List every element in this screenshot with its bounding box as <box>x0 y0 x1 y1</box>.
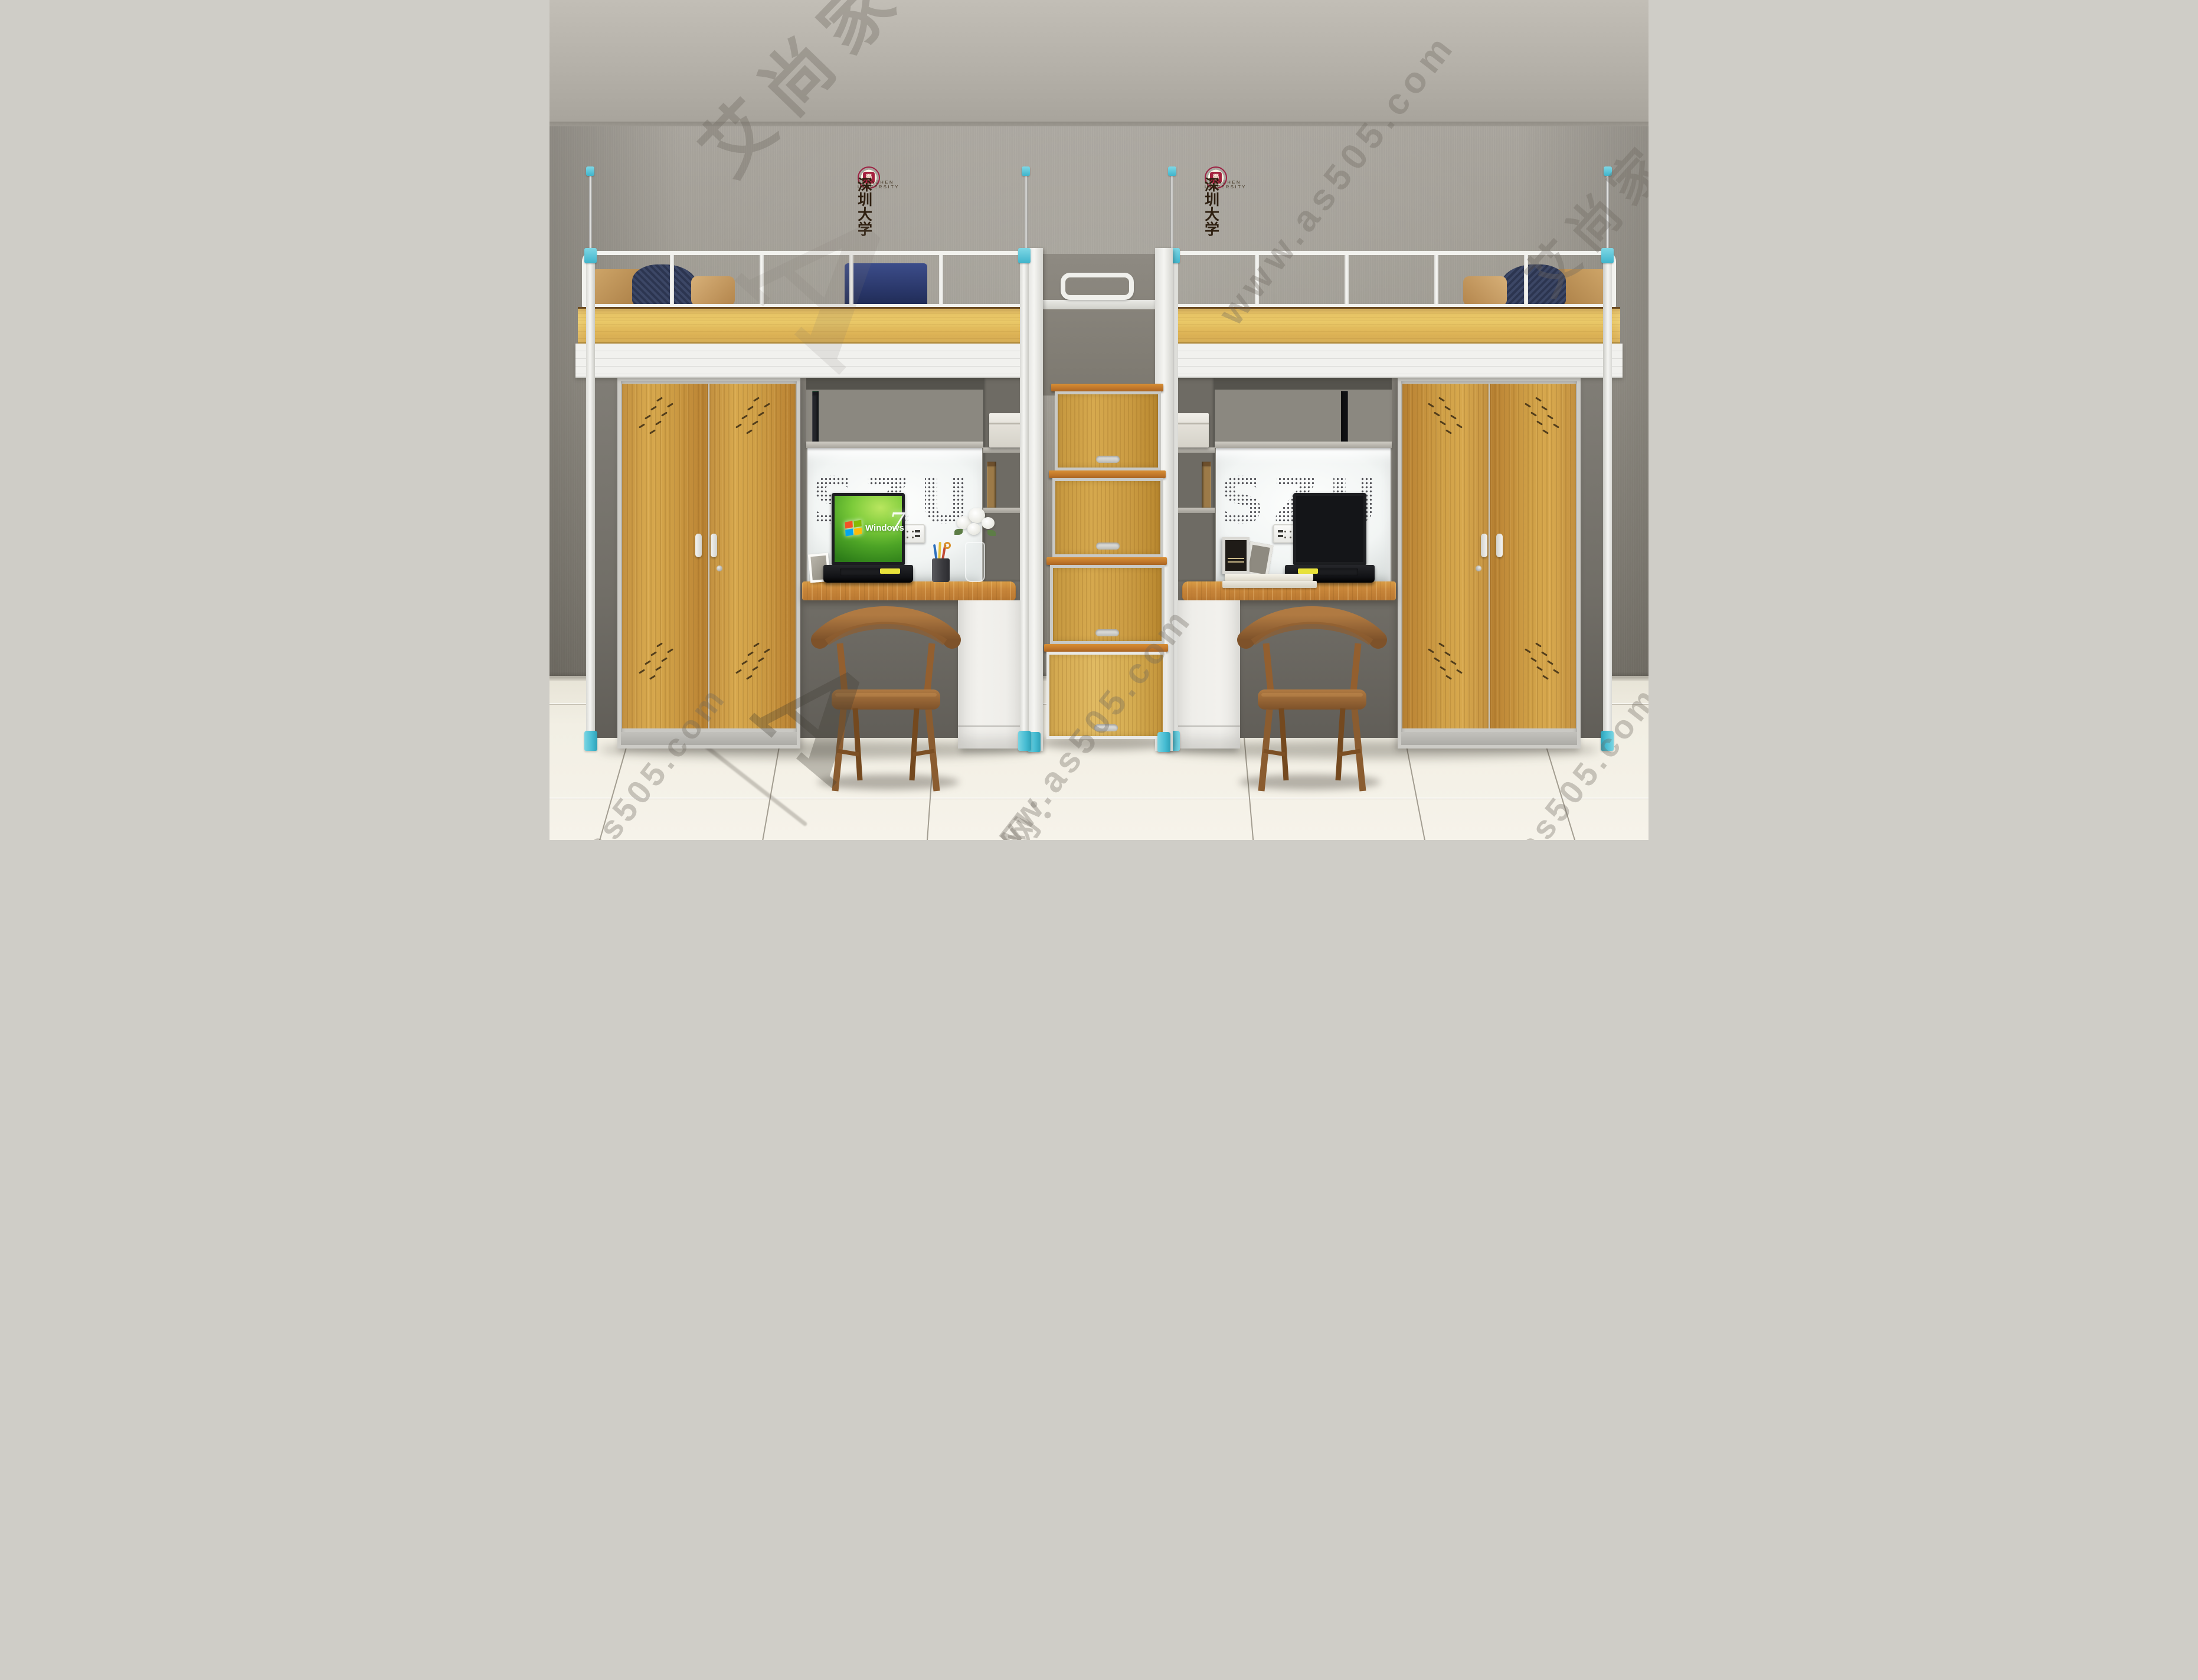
wardrobe-door-right <box>709 384 796 728</box>
net-pole <box>589 172 592 253</box>
wooden-chair <box>1235 596 1389 797</box>
net-pole <box>1606 172 1609 253</box>
photo-frames-and-books <box>1205 537 1275 587</box>
usb-ports <box>915 530 920 532</box>
laptop-screen: Windows 7 <box>832 493 905 565</box>
bed-side-panel <box>1161 307 1620 344</box>
wardrobe-lock <box>1476 566 1481 571</box>
net-pole-cap <box>1022 166 1030 176</box>
wardrobe <box>1398 378 1581 749</box>
net-pole <box>1170 172 1173 253</box>
storage-box <box>989 413 1021 447</box>
windows-flag-icon <box>845 520 863 537</box>
bed-post-right <box>1020 248 1029 751</box>
wardrobe <box>617 378 800 749</box>
rail-bar <box>1524 255 1528 304</box>
old-books <box>987 458 1025 508</box>
photo-frame <box>1222 537 1250 574</box>
vent-slots <box>639 642 680 684</box>
rail-bar <box>1434 255 1438 304</box>
wardrobe-handle <box>711 534 717 557</box>
under-desk-cabinet <box>1172 600 1240 749</box>
bed-post-left <box>1603 248 1612 751</box>
wardrobe-handle <box>1481 534 1487 557</box>
bed-post-left <box>586 248 595 751</box>
post-connector <box>1018 248 1031 263</box>
wardrobe-door-right <box>1402 384 1489 728</box>
bed-unit-right: 學 深圳大学 SHENZHEN UNIVERSITY <box>1159 159 1623 815</box>
scissors <box>944 542 951 549</box>
book-spine <box>1202 466 1211 508</box>
book-spine <box>1342 392 1348 442</box>
bed-unit-left: 學 深圳大学 SHENZHEN UNIVERSITY <box>575 159 1039 815</box>
storage-box <box>1177 413 1209 447</box>
notebook <box>1222 581 1317 588</box>
post-foot-cap <box>1167 731 1180 751</box>
laptop: Windows 7 <box>823 493 913 587</box>
bookshelf-row <box>809 390 981 442</box>
post-connector <box>1167 248 1180 263</box>
university-logo: 學 深圳大学 SHENZHEN UNIVERSITY <box>858 164 993 191</box>
guard-rail <box>582 251 1031 308</box>
wooden-chair <box>809 596 963 797</box>
rail-bar <box>670 255 674 304</box>
rail-bar <box>849 255 853 304</box>
net-pole-cap <box>586 166 594 176</box>
vent-slots <box>1421 642 1463 684</box>
guard-rail <box>1167 251 1616 308</box>
rail-bar <box>939 255 943 304</box>
post-connector <box>1601 248 1614 263</box>
rail-bar <box>760 255 764 304</box>
vent-slots <box>1518 642 1559 684</box>
vent-slots <box>735 642 777 684</box>
usb-ports <box>1278 530 1283 532</box>
rail-bar <box>1255 255 1259 304</box>
under-desk-cabinet <box>958 600 1026 749</box>
shelf-top-shadow <box>806 378 983 390</box>
laptop: Windows 7 <box>1285 493 1375 587</box>
vent-slots <box>1518 397 1559 438</box>
ceiling <box>549 0 1648 126</box>
university-logo: 學 深圳大学 SHENZHEN UNIVERSITY <box>1205 164 1340 191</box>
post-foot-cap <box>1018 731 1031 751</box>
bed-side-panel <box>578 307 1037 344</box>
white-flowers <box>953 505 998 547</box>
bed-post-right <box>1169 248 1178 751</box>
net-pole-cap <box>1604 166 1612 176</box>
rail-bar <box>1345 255 1349 304</box>
laptop-sticker <box>1298 568 1318 574</box>
windows-version: 7 <box>889 508 905 538</box>
laptop-sticker <box>880 568 900 574</box>
windows7-wallpaper: Windows 7 <box>835 496 902 562</box>
vent-slots <box>639 397 680 438</box>
book-spine <box>987 466 996 508</box>
post-foot-cap <box>1601 731 1614 751</box>
laptop-keyboard <box>823 565 913 583</box>
flower-vase <box>965 542 985 582</box>
old-books <box>1173 458 1211 508</box>
net-pole-cap <box>1168 166 1176 176</box>
bed-frame-fascia <box>575 344 1039 378</box>
shelf-board <box>1215 442 1392 448</box>
book-spine <box>812 396 817 442</box>
wardrobe-handle <box>1496 534 1503 557</box>
vent-slots <box>735 397 777 438</box>
bookshelf-row <box>1217 390 1389 442</box>
wardrobe-lock <box>717 566 722 571</box>
bed-frame-fascia <box>1159 344 1623 378</box>
vent-slots <box>1421 397 1463 438</box>
post-foot-cap <box>584 731 597 751</box>
dorm-room-scene: 學 深圳大学 SHENZHEN UNIVERSITY <box>549 0 1648 840</box>
wardrobe-handle <box>695 534 702 557</box>
net-pole <box>1025 172 1028 253</box>
shelf-board <box>806 442 983 448</box>
shelf-top-shadow <box>1215 378 1392 390</box>
wardrobe-plinth <box>1401 732 1577 745</box>
wardrobe-door-left <box>1490 384 1576 728</box>
laptop-screen: Windows 7 <box>1293 493 1366 565</box>
pen-cup <box>932 558 950 582</box>
post-connector <box>584 248 597 263</box>
wardrobe-plinth <box>621 732 797 745</box>
notebook <box>1225 574 1313 581</box>
university-name-en: SHENZHEN UNIVERSITY <box>858 180 900 189</box>
university-name-en: SHENZHEN UNIVERSITY <box>1205 180 1247 189</box>
